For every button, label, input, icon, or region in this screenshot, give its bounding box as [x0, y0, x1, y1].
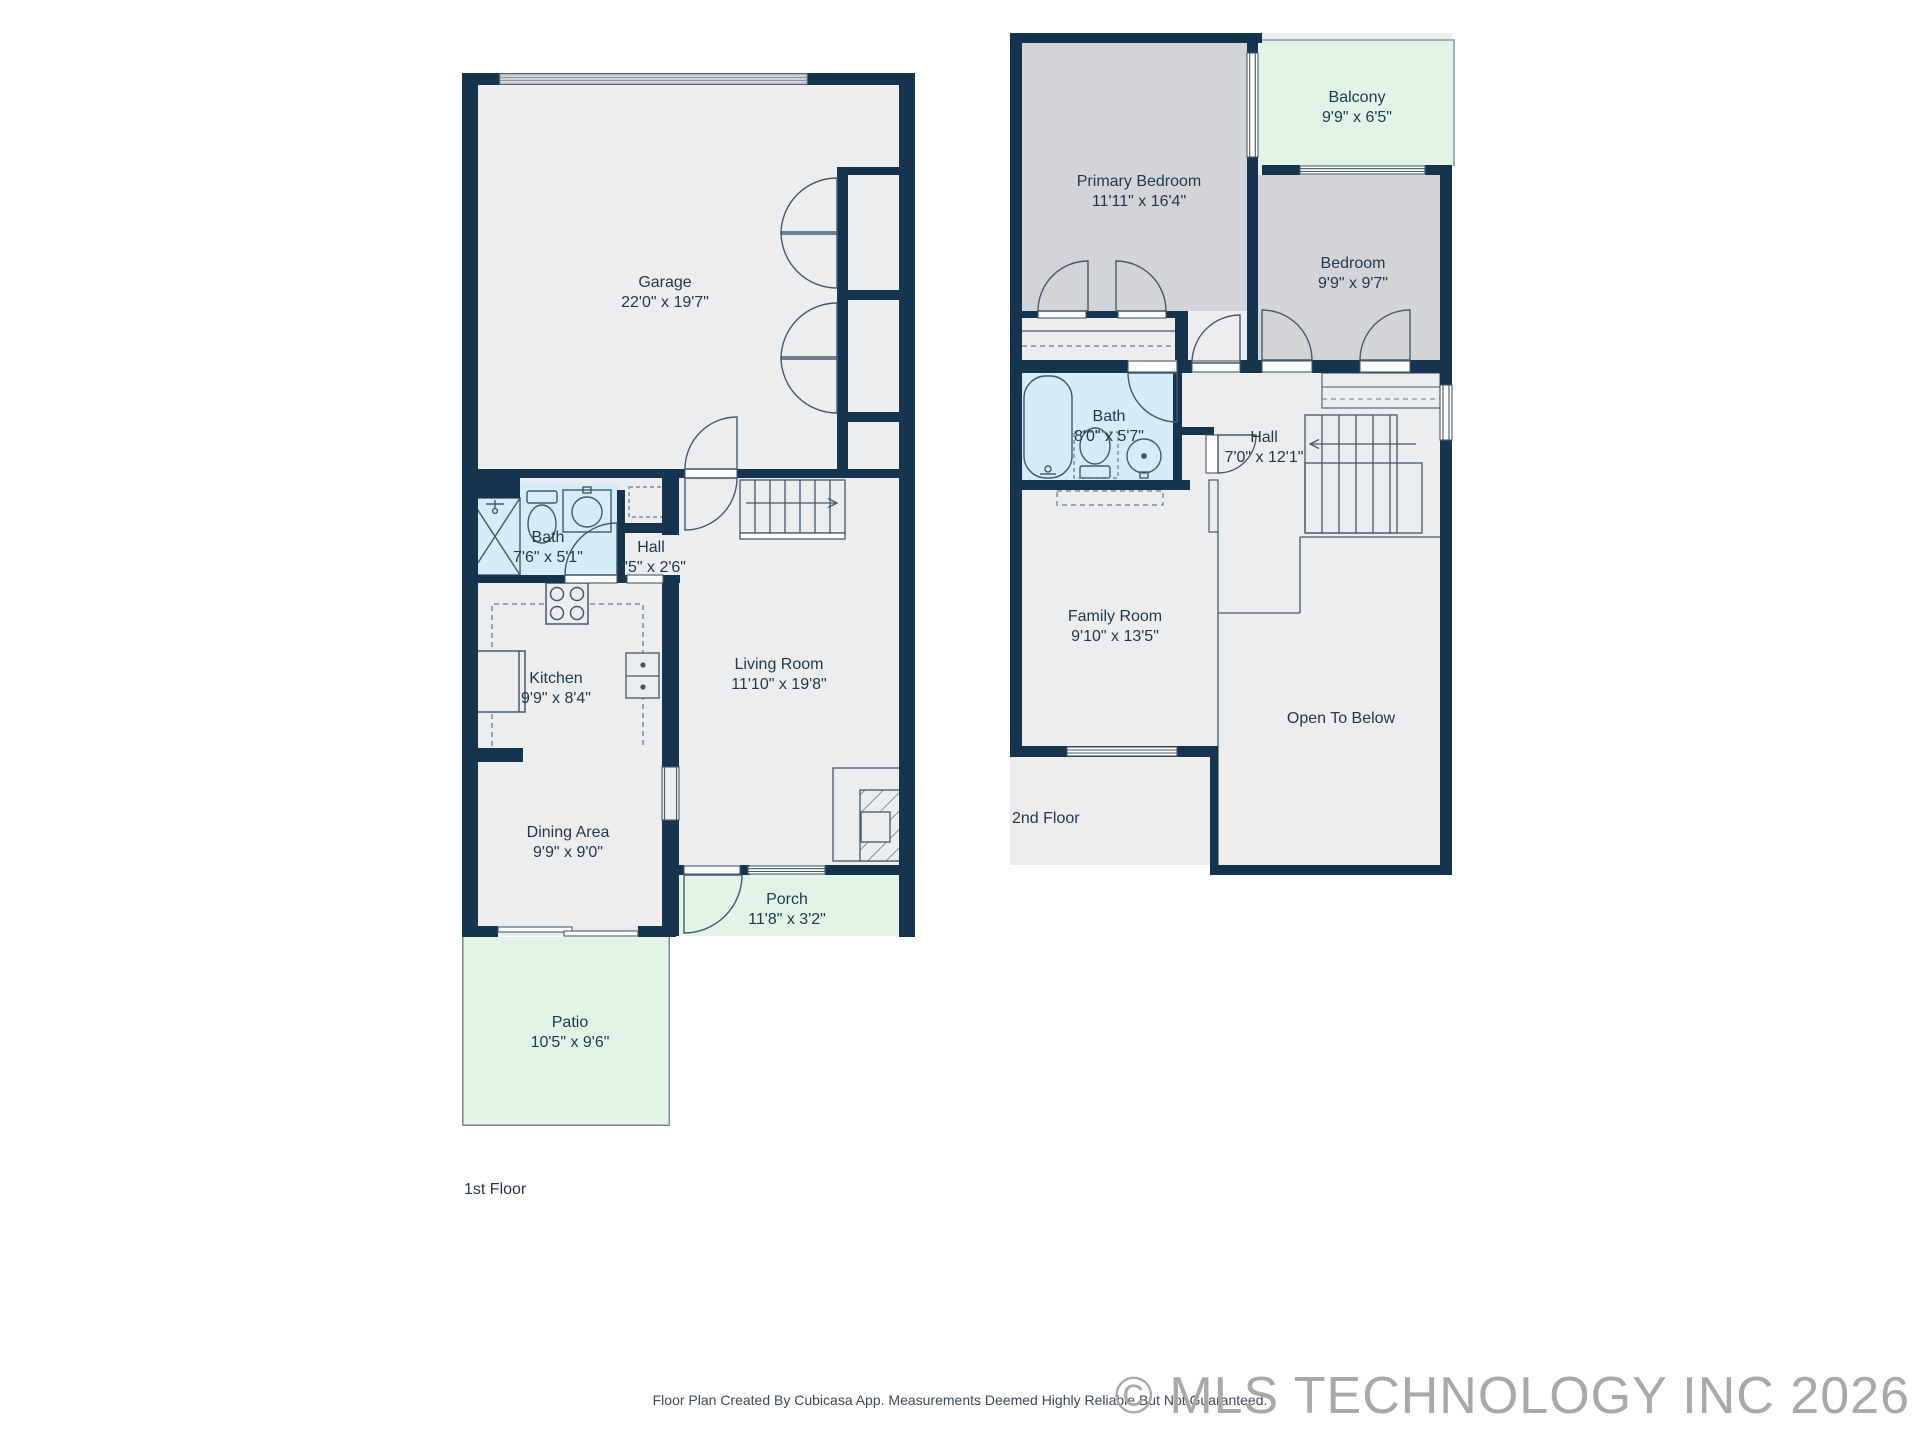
floor1-label: 1st Floor — [464, 1181, 526, 1199]
patio-floor — [462, 937, 670, 1126]
oven-icon — [626, 653, 659, 698]
floorplan-graphics — [0, 0, 1920, 1440]
bedroom-floor — [1258, 175, 1440, 360]
garage-door-icon — [500, 74, 807, 84]
floor2-plan — [1010, 33, 1454, 875]
mls-copyright: © MLS TECHNOLOGY INC 2026 — [1115, 1366, 1910, 1426]
fridge-icon — [471, 651, 525, 712]
landing-rail — [1209, 480, 1218, 532]
bathtub-icon — [1024, 376, 1072, 478]
hall-closet-floor2 — [1322, 373, 1440, 408]
floor1-plan — [462, 73, 915, 1126]
toilet-icon-floor1 — [527, 491, 557, 543]
floor2-label: 2nd Floor — [1012, 810, 1080, 828]
stairs-floor1 — [740, 480, 845, 539]
primary-bedroom-floor — [1022, 43, 1248, 311]
porch-floor — [672, 868, 902, 936]
stove-icon — [546, 583, 588, 624]
primary-closet — [1022, 318, 1175, 360]
toilet-icon-floor2 — [1080, 428, 1110, 478]
balcony-floor — [1258, 42, 1454, 166]
